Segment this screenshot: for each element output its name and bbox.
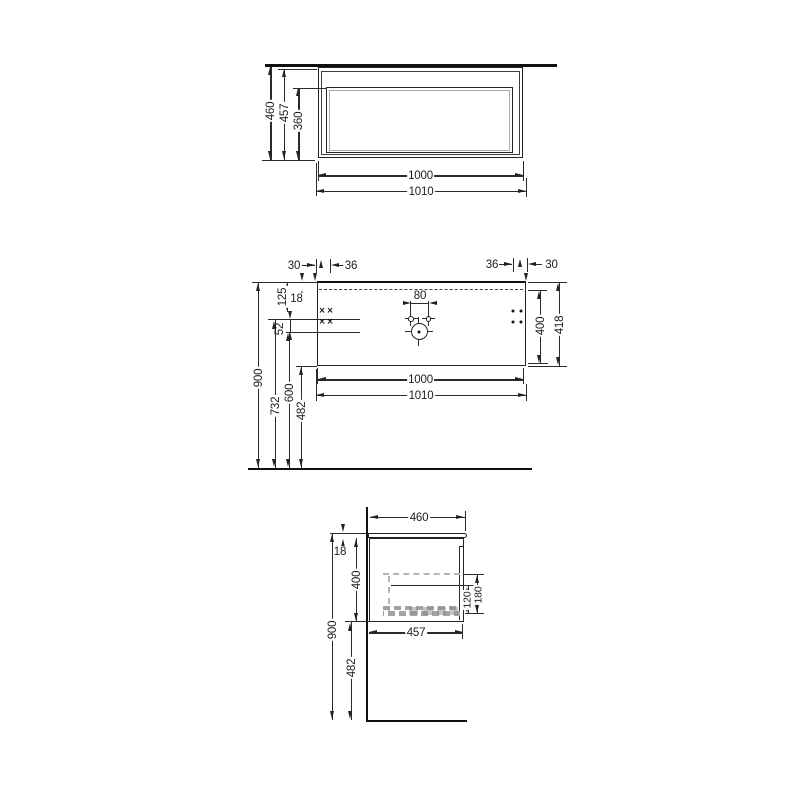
siphon-clearance-hatch: [423, 607, 433, 616]
dim-plan-right-edge-offset: 30: [544, 258, 559, 270]
arrowhead: [331, 263, 339, 267]
extension-line: [526, 178, 527, 197]
siphon-clearance-hatch: [437, 607, 446, 616]
arrowhead: [369, 630, 377, 634]
siphon-clearance-hatch: [383, 606, 460, 610]
siphon-clearance-hatch: [409, 607, 418, 616]
arrowhead: [268, 67, 272, 75]
extension-line: [262, 160, 315, 161]
drill-mark: ×: [326, 306, 333, 315]
dim-plan-inner-depth: 400: [534, 315, 546, 337]
extension-line: [523, 161, 524, 181]
extension-line: [252, 282, 317, 283]
dim-plan-left-hole-spacing: 36: [343, 260, 358, 272]
technical-drawing-vanity-unit: 460 457 360 1000 1010 × × × × 30: [0, 0, 800, 800]
arrowhead: [286, 333, 290, 341]
extension-line: [465, 511, 466, 531]
dim-front-drawer-height: 360: [293, 110, 305, 132]
arrowhead: [504, 262, 512, 266]
arrowhead: [537, 355, 541, 363]
extension-line: [526, 384, 527, 401]
arrowhead: [282, 69, 286, 77]
extension-line: [523, 368, 524, 384]
extension-line: [317, 368, 318, 384]
clearance-zone-hidden-edge: [383, 573, 460, 575]
fixing-rail-lower: [283, 332, 360, 333]
arrowhead: [354, 613, 358, 621]
arrowhead: [330, 534, 334, 542]
tap-hole-symbol: [426, 316, 432, 322]
arrowhead: [515, 377, 523, 381]
extension-line: [462, 624, 463, 640]
extension-tick: [513, 258, 514, 272]
arrowhead: [455, 630, 463, 634]
arrowhead: [518, 393, 526, 397]
fixing-dot: [519, 310, 522, 313]
drill-mark: ×: [318, 317, 325, 326]
arrowhead: [256, 459, 260, 467]
arrowhead: [316, 189, 324, 193]
arrowhead: [268, 151, 272, 159]
dim-side-worktop-thickness: 18: [332, 546, 347, 558]
extension-line: [463, 574, 484, 575]
fixing-dot: [512, 321, 515, 324]
dim-plan-carcass-width: 1000: [407, 374, 435, 386]
arrowhead: [518, 189, 526, 193]
extension-line: [410, 301, 411, 326]
extension-line: [330, 533, 366, 534]
dim-front-worktop-width: 1010: [407, 186, 435, 198]
dim-side-drain-clearance-max: 180: [473, 585, 484, 605]
arrowhead: [286, 459, 290, 467]
dim-front-carcass-width: 1000: [407, 170, 435, 182]
drill-mark: ×: [318, 306, 325, 315]
worktop-front-edge: [317, 281, 526, 283]
extension-line: [318, 161, 319, 181]
dimension-line: [536, 264, 542, 265]
arrowhead: [515, 173, 523, 177]
extension-line: [293, 88, 326, 89]
floor-line: [366, 720, 468, 723]
arrowhead: [475, 575, 479, 583]
dim-front-carcass-height: 457: [278, 102, 290, 124]
arrowhead: [456, 515, 464, 519]
arrowhead: [475, 605, 479, 613]
extension-tick: [316, 259, 317, 273]
arrowhead: [316, 393, 324, 397]
arrowhead: [296, 88, 300, 96]
arrowhead: [556, 357, 560, 365]
arrowhead: [299, 367, 303, 375]
extension-line: [528, 363, 548, 364]
dim-side-carcass-height: 400: [351, 569, 363, 591]
dim-side-drain-clearance-min: 120: [462, 590, 473, 610]
dim-plan-worktop-width: 1010: [407, 389, 435, 401]
arrowhead: [537, 291, 541, 299]
dim-side-worktop-height: 900: [327, 619, 339, 641]
extension-line: [278, 69, 317, 70]
arrowhead: [330, 711, 334, 719]
arrowhead: [318, 173, 326, 177]
arrowhead: [370, 515, 378, 519]
dim-side-underside-clearance: 482: [345, 657, 357, 679]
arrowhead: [272, 321, 276, 329]
arrowhead: [296, 151, 300, 159]
floor-line: [248, 468, 532, 471]
siphon-clearance-hatch: [450, 607, 458, 616]
dim-plan-upper-fixing-height: 732: [269, 395, 281, 417]
dim-plan-lower-fixing-height: 600: [283, 382, 295, 404]
dim-plan-hole-row-offset: 125: [276, 286, 288, 308]
dim-plan-tap-hole-spacing: 80: [412, 290, 427, 302]
arrowhead: [348, 623, 352, 631]
arrowhead: [429, 301, 437, 305]
dim-front-total-height: 460: [265, 100, 277, 122]
extension-line: [528, 282, 567, 283]
drill-mark: ×: [326, 317, 333, 326]
arrowhead: [307, 263, 315, 267]
fixing-dot: [519, 321, 522, 324]
arrowhead: [341, 524, 345, 532]
arrowhead: [272, 459, 276, 467]
wall-line: [366, 507, 369, 721]
arrowhead: [256, 283, 260, 291]
arrowhead: [556, 283, 560, 291]
dim-plan-top-inset: 18: [289, 293, 304, 305]
arrowhead: [288, 311, 292, 319]
arrowhead: [299, 459, 303, 467]
drawer-front-inner-edge: [329, 90, 510, 151]
arrowhead: [319, 260, 323, 268]
dim-side-total-depth: 460: [408, 511, 430, 523]
arrowhead: [403, 301, 411, 305]
tap-hole-symbol: [408, 316, 414, 322]
arrowhead: [300, 273, 304, 281]
arrowhead: [313, 273, 317, 281]
dim-plan-underside-clearance: 482: [296, 400, 308, 422]
arrowhead: [528, 262, 536, 266]
arrowhead: [348, 711, 352, 719]
arrowhead: [318, 377, 326, 381]
arrowhead: [524, 273, 528, 281]
arrowhead: [518, 259, 522, 267]
dim-side-carcass-depth: 457: [405, 627, 427, 639]
dim-plan-worktop-height: 900: [253, 367, 265, 389]
drain-center-dot: [418, 330, 421, 333]
dim-plan-total-depth: 418: [553, 314, 565, 336]
arrowhead: [282, 151, 286, 159]
dimension-line: [411, 303, 429, 304]
drawer-front-edge: [459, 546, 464, 547]
dimension-line: [290, 320, 291, 332]
dim-plan-right-hole-spacing: 36: [484, 258, 499, 270]
extension-line: [528, 366, 567, 367]
fixing-dot: [512, 310, 515, 313]
dim-plan-left-edge-offset: 30: [286, 260, 301, 272]
siphon-clearance-hatch: [383, 611, 460, 617]
arrowhead: [354, 539, 358, 547]
